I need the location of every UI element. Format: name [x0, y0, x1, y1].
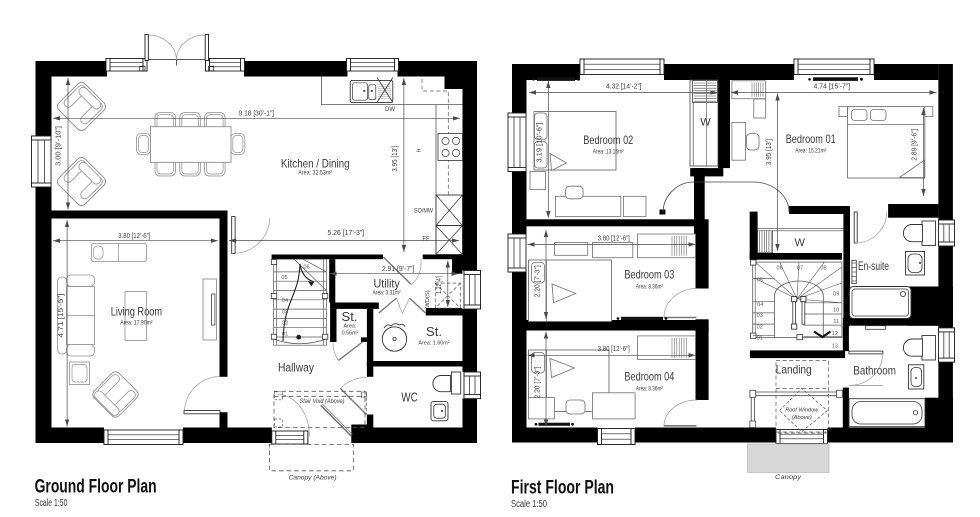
- svg-text:2.89 [9’-6”]: 2.89 [9’-6”]: [909, 129, 918, 161]
- svg-text:06: 06: [776, 266, 782, 272]
- svg-text:Hallway: Hallway: [278, 362, 314, 375]
- svg-text:05: 05: [281, 275, 287, 281]
- svg-text:12: 12: [832, 331, 838, 337]
- svg-text:04: 04: [282, 298, 288, 304]
- svg-text:Roof Window: Roof Window: [785, 408, 819, 414]
- svg-text:(Above): (Above): [792, 415, 812, 421]
- svg-text:W: W: [795, 237, 806, 249]
- svg-text:11: 11: [833, 319, 839, 325]
- svg-text:St.: St.: [342, 309, 358, 324]
- svg-text:Area: 3.31m²: Area: 3.31m²: [373, 291, 401, 297]
- svg-text:Area:: Area:: [344, 324, 357, 330]
- svg-text:Area: 15.21m²: Area: 15.21m²: [795, 149, 826, 155]
- svg-text:Canopy: Canopy: [775, 474, 802, 481]
- svg-text:Scale 1:50: Scale 1:50: [35, 498, 68, 509]
- svg-text:01: 01: [757, 335, 763, 341]
- svg-text:13: 13: [832, 344, 838, 350]
- svg-text:Area: 13.15m²: Area: 13.15m²: [593, 150, 624, 156]
- svg-text:3.80 [12’-6”]: 3.80 [12’-6”]: [598, 234, 630, 243]
- svg-text:2.20 [7’-3”]: 2.20 [7’-3”]: [532, 367, 541, 399]
- svg-text:En-suite: En-suite: [858, 260, 889, 273]
- svg-text:Area: 17.90m²: Area: 17.90m²: [120, 321, 152, 327]
- svg-text:Scale 1:50: Scale 1:50: [511, 499, 547, 510]
- svg-text:SO/MW: SO/MW: [414, 209, 433, 215]
- svg-text:Ground Floor Plan: Ground Floor Plan: [35, 476, 157, 498]
- svg-text:0.56m²: 0.56m²: [342, 331, 359, 337]
- svg-text:01: 01: [282, 332, 288, 338]
- svg-text:04: 04: [757, 302, 763, 308]
- svg-text:Living Room: Living Room: [111, 305, 162, 318]
- svg-text:Bedroom 04: Bedroom 04: [624, 370, 674, 383]
- svg-text:02: 02: [282, 321, 288, 327]
- svg-text:3.95 [13’]: 3.95 [13’]: [390, 146, 399, 172]
- svg-text:4.74 [15’-7”]: 4.74 [15’-7”]: [814, 81, 851, 90]
- svg-text:Utility: Utility: [374, 277, 400, 290]
- svg-text:Canopy (Above): Canopy (Above): [289, 475, 337, 482]
- svg-text:Area: 8.36m²: Area: 8.36m²: [636, 284, 663, 290]
- svg-text:4.71 [15’-5”]: 4.71 [15’-5”]: [56, 294, 65, 338]
- svg-text:3.95 [13’]: 3.95 [13’]: [764, 139, 773, 165]
- svg-text:2.20 [7’-3”]: 2.20 [7’-3”]: [532, 265, 541, 297]
- svg-text:02: 02: [757, 324, 763, 330]
- svg-text:Area: 8.36m²: Area: 8.36m²: [636, 386, 663, 392]
- svg-text:DW: DW: [385, 107, 395, 113]
- svg-text:Bedroom 01: Bedroom 01: [786, 133, 836, 146]
- svg-text:Bedroom 02: Bedroom 02: [583, 134, 633, 147]
- svg-text:06: 06: [303, 264, 309, 270]
- svg-text:03: 03: [282, 310, 288, 316]
- svg-text:FF: FF: [422, 237, 430, 243]
- svg-text:WC: WC: [401, 391, 418, 405]
- svg-text:W: W: [700, 117, 711, 129]
- svg-text:Stair Void (Above): Stair Void (Above): [300, 399, 345, 405]
- svg-text:St.: St.: [426, 324, 442, 339]
- svg-text:Area: 32.53m²: Area: 32.53m²: [298, 171, 332, 177]
- svg-text:1.22 [4’]: 1.22 [4’]: [434, 276, 443, 294]
- svg-text:First Floor Plan: First Floor Plan: [511, 477, 614, 499]
- svg-text:3.00 [9’-10”]: 3.00 [9’-10”]: [54, 126, 63, 166]
- svg-text:Bedroom 03: Bedroom 03: [624, 268, 674, 281]
- svg-text:05: 05: [757, 277, 763, 283]
- svg-text:3.80 [12’-6”]: 3.80 [12’-6”]: [118, 231, 150, 240]
- svg-text:5.26 [17’-3”]: 5.26 [17’-3”]: [328, 228, 365, 237]
- svg-text:Bathroom: Bathroom: [853, 365, 896, 378]
- svg-text:4.32 [14’-2”]: 4.32 [14’-2”]: [606, 81, 642, 90]
- svg-text:10: 10: [833, 308, 839, 314]
- svg-text:03: 03: [757, 313, 763, 319]
- svg-text:WD(S): WD(S): [425, 290, 431, 307]
- svg-text:Landing: Landing: [776, 364, 812, 377]
- svg-text:2.91 [9’-7”]: 2.91 [9’-7”]: [382, 264, 415, 273]
- svg-text:09: 09: [833, 292, 839, 298]
- svg-text:Area: 1.60m²: Area: 1.60m²: [418, 341, 449, 347]
- svg-text:07: 07: [797, 266, 803, 272]
- svg-text:Kitchen / Dining: Kitchen / Dining: [281, 158, 350, 171]
- svg-text:3.19 [10’-6”]: 3.19 [10’-6”]: [534, 123, 543, 163]
- svg-text:08: 08: [820, 266, 826, 272]
- svg-text:3.80 [12’-6”]: 3.80 [12’-6”]: [598, 344, 630, 353]
- svg-text:9.18 [30’-1”]: 9.18 [30’-1”]: [239, 109, 275, 118]
- svg-text:H: H: [417, 148, 423, 152]
